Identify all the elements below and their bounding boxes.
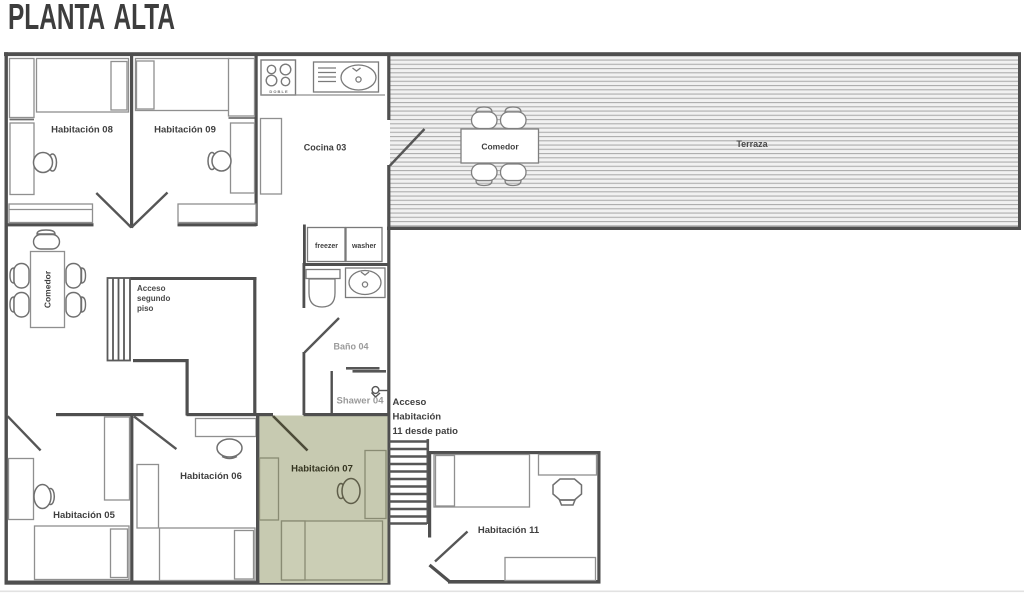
svg-text:Cocina 03: Cocina 03	[304, 143, 347, 153]
svg-text:Comedor: Comedor	[43, 270, 53, 308]
svg-text:Habitación 11: Habitación 11	[478, 525, 540, 536]
svg-text:Shawer 04: Shawer 04	[337, 396, 385, 407]
svg-text:Habitación 06: Habitación 06	[180, 471, 242, 482]
svg-text:Habitación 09: Habitación 09	[154, 125, 216, 136]
svg-text:PLANTA ALTA: PLANTA ALTA	[8, 0, 175, 37]
svg-text:Habitación 05: Habitación 05	[53, 510, 115, 521]
svg-text:freezer: freezer	[315, 243, 338, 250]
svg-text:Habitación 07: Habitación 07	[291, 464, 353, 475]
svg-text:washer: washer	[351, 243, 376, 250]
svg-text:D O B L E: D O B L E	[269, 89, 288, 94]
svg-text:Habitación 08: Habitación 08	[51, 125, 113, 136]
svg-text:Terraza: Terraza	[736, 139, 768, 149]
svg-text:Baño 04: Baño 04	[333, 342, 368, 352]
svg-text:Comedor: Comedor	[481, 142, 519, 152]
